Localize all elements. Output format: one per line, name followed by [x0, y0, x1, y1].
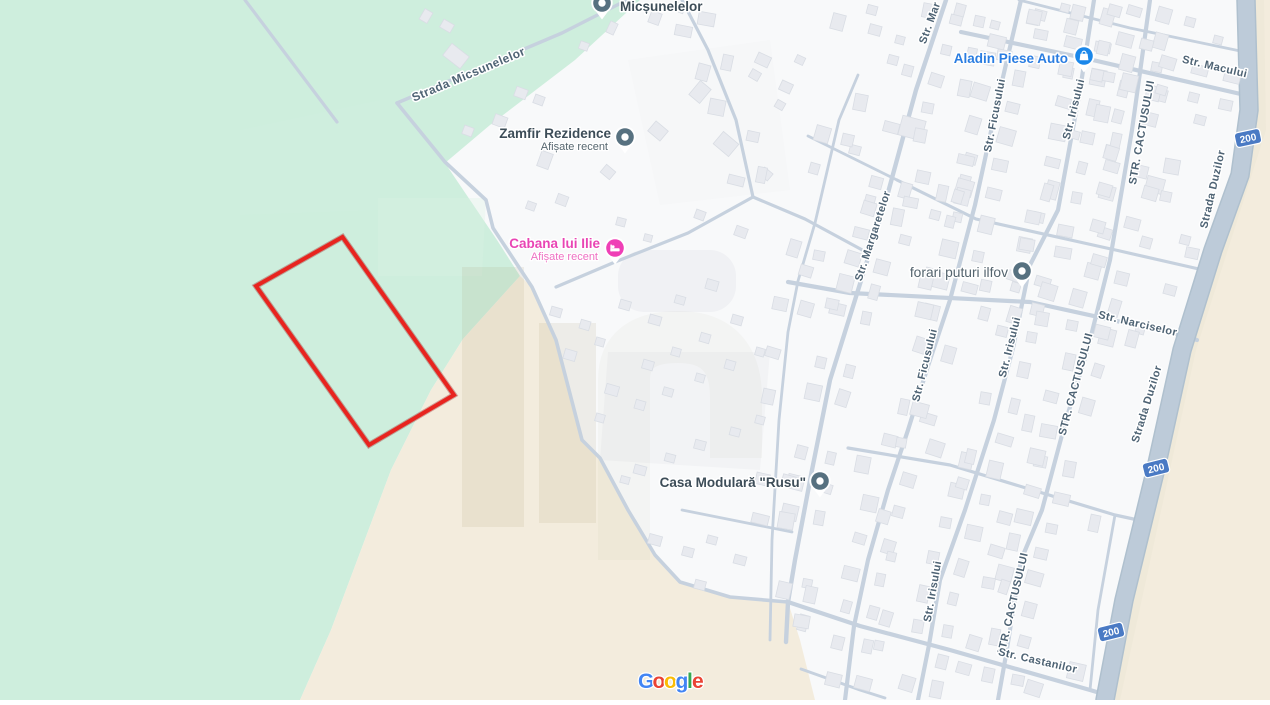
svg-text:e: e [692, 670, 704, 693]
svg-text:Cabana lui Ilie: Cabana lui Ilie [509, 236, 600, 251]
svg-text:Aladin Piese Auto: Aladin Piese Auto [954, 51, 1068, 66]
svg-text:Micșunelelor: Micșunelelor [620, 0, 703, 14]
svg-text:Afișate recent: Afișate recent [541, 141, 608, 153]
svg-text:Zamfir Rezidence: Zamfir Rezidence [499, 126, 611, 141]
svg-text:Casa Modulară "Rusu": Casa Modulară "Rusu" [660, 475, 806, 490]
svg-text:forari puturi ilfov: forari puturi ilfov [910, 265, 1008, 280]
svg-text:Afișate recent: Afișate recent [531, 251, 598, 263]
